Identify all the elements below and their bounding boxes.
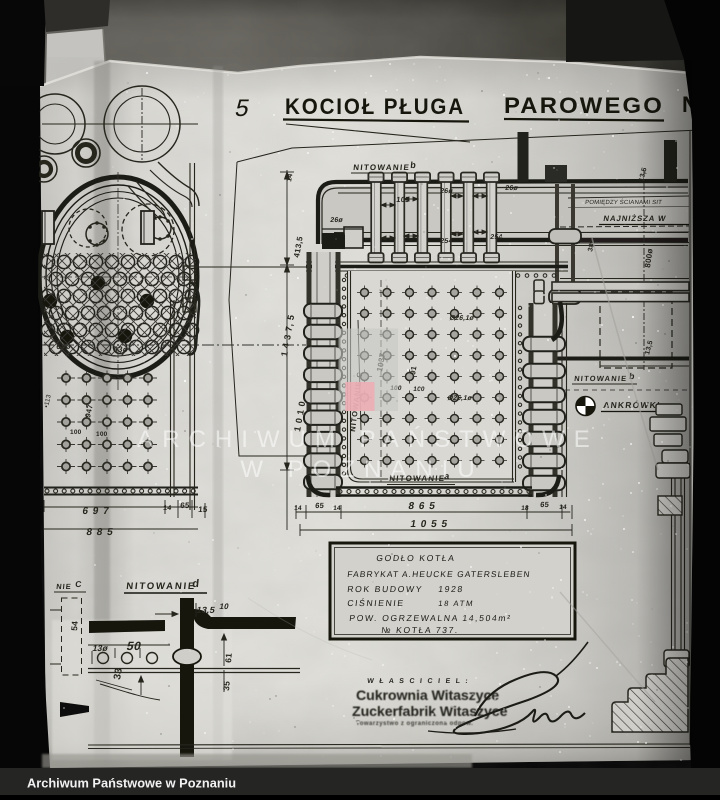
svg-text:W POZNANIU: W POZNANIU — [240, 456, 483, 483]
svg-text:254: 254 — [440, 238, 453, 245]
svg-text:18: 18 — [521, 505, 530, 512]
svg-text:35: 35 — [221, 680, 232, 691]
svg-text:26ø: 26ø — [330, 217, 344, 224]
svg-text:61: 61 — [223, 652, 234, 663]
svg-text:100: 100 — [413, 386, 426, 393]
svg-text:NIE: NIE — [56, 582, 72, 591]
svg-text:CIŚNIENIE: CIŚNIENIE — [347, 597, 406, 608]
svg-text:65: 65 — [315, 501, 325, 510]
svg-text:1928: 1928 — [438, 584, 465, 594]
svg-text:POW. OGRZEWALNA 14,504m²: POW. OGRZEWALNA 14,504m² — [349, 613, 512, 623]
svg-text:NITOWANIE: NITOWANIE — [353, 163, 411, 172]
svg-text:Ø26,1ø: Ø26,1ø — [446, 394, 473, 402]
svg-text:65: 65 — [540, 500, 550, 509]
svg-text:14: 14 — [333, 505, 342, 512]
svg-text:63ø: 63ø — [113, 345, 129, 354]
svg-text:91: 91 — [408, 365, 418, 375]
svg-text:14: 14 — [294, 505, 303, 512]
svg-text:d: d — [192, 578, 200, 590]
svg-text:ARCHIWUM PAŃSTWOWE: ARCHIWUM PAŃSTWOWE — [137, 426, 599, 453]
svg-text:68ø: 68ø — [56, 342, 72, 351]
svg-text:NITOWANIE: NITOWANIE — [126, 581, 197, 592]
svg-text:100: 100 — [70, 429, 82, 436]
svg-text:№ KOTŁA 737.: № KOTŁA 737. — [381, 625, 460, 635]
svg-text:1 0 5 5: 1 0 5 5 — [409, 519, 448, 530]
svg-text:Zuckerfabrik Witaszyce: Zuckerfabrik Witaszyce — [352, 704, 508, 720]
svg-text:26ø: 26ø — [440, 188, 454, 195]
svg-text:W Ł A S C I C I E L :: W Ł A S C I C I E L : — [367, 678, 470, 685]
svg-text:14: 14 — [286, 173, 294, 182]
svg-text:18 ATM: 18 ATM — [438, 599, 475, 608]
svg-text:KOCIOŁ PŁUGA: KOCIOŁ PŁUGA — [285, 94, 465, 119]
svg-text:13ø: 13ø — [91, 643, 109, 653]
svg-text:65: 65 — [180, 501, 191, 510]
svg-text:8 6 5: 8 6 5 — [408, 501, 437, 512]
svg-text:Towarzystwo z ograniczona odpo: Towarzystwo z ograniczona odpow. — [356, 721, 473, 727]
svg-text:Cukrownia Witaszyce: Cukrownia Witaszyce — [356, 688, 499, 704]
svg-text:6 9 7: 6 9 7 — [81, 506, 110, 517]
svg-text:8 8 5: 8 8 5 — [85, 527, 114, 538]
svg-text:33: 33 — [112, 667, 125, 681]
svg-text:Ø26,1ø: Ø26,1ø — [449, 314, 476, 322]
svg-text:100: 100 — [96, 431, 108, 438]
svg-text:Archiwum Państwowe w Poznaniu: Archiwum Państwowe w Poznaniu — [27, 776, 236, 791]
svg-text:13,5: 13,5 — [196, 605, 216, 615]
svg-text:54: 54 — [69, 620, 80, 631]
svg-text:14: 14 — [559, 504, 568, 511]
svg-text:C: C — [75, 579, 82, 589]
svg-text:14: 14 — [163, 505, 172, 512]
svg-text:ROK BUDOWY: ROK BUDOWY — [347, 584, 424, 594]
svg-text:GODŁO KOTŁA: GODŁO KOTŁA — [376, 553, 456, 563]
svg-text:FABRYKAT A.HEUCKE GATERSLEBEN: FABRYKAT A.HEUCKE GATERSLEBEN — [347, 569, 532, 579]
svg-text:NITOWANIE: NITOWANIE — [574, 374, 628, 383]
svg-text:15: 15 — [198, 505, 209, 514]
svg-text:26ø: 26ø — [505, 185, 519, 192]
